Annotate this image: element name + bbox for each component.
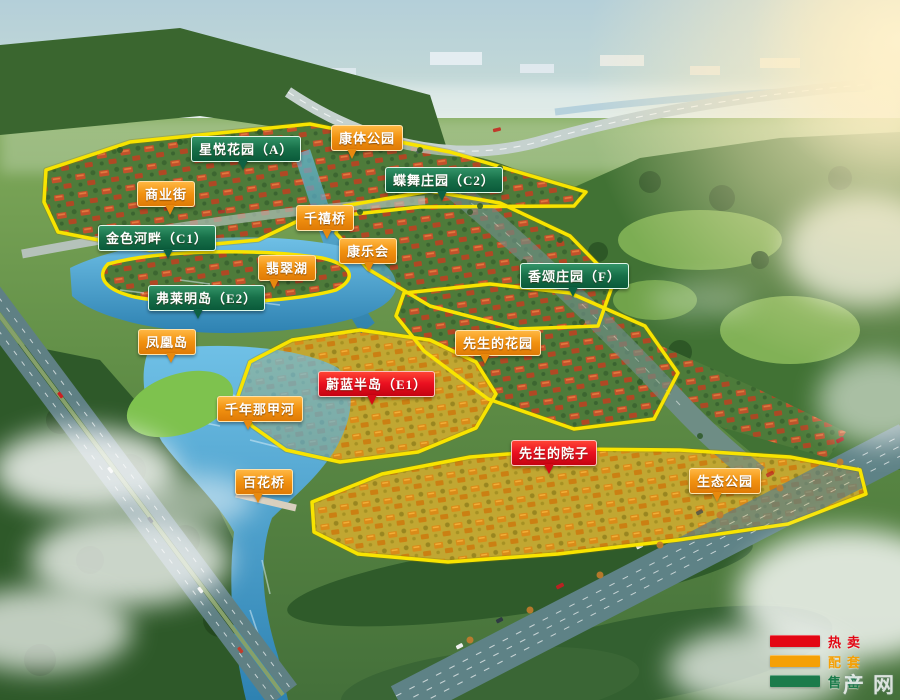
label-tail-pointer	[269, 279, 279, 289]
label-text: 先生的院子	[519, 446, 589, 461]
label-tail-pointer	[166, 353, 176, 363]
label-text: 凤凰岛	[146, 335, 188, 350]
label-text: 翡翠湖	[266, 261, 308, 276]
label-text: 蝶舞庄园（C2）	[393, 173, 495, 188]
label-tail-pointer	[238, 160, 248, 170]
label-tail-pointer	[322, 229, 332, 239]
legend-color-swatch-amenity	[770, 655, 820, 667]
label-text: 千禧桥	[304, 211, 346, 226]
map-label-mr-garden[interactable]: 先生的花园	[455, 330, 541, 356]
label-tail-pointer	[243, 420, 253, 430]
label-text: 先生的花园	[463, 336, 533, 351]
label-text: 金色河畔（C1）	[106, 231, 208, 246]
map-label-kangti-park[interactable]: 康体公园	[331, 125, 403, 151]
label-tail-pointer	[253, 493, 263, 503]
site-watermark: 产网	[843, 669, 900, 699]
map-label-jinse-riverside-c1[interactable]: 金色河畔（C1）	[98, 225, 216, 251]
map-label-xiangsong-manor-f[interactable]: 香颂庄园（F）	[520, 263, 629, 289]
legend-label-hot: 热卖	[828, 632, 866, 651]
legend-label-amenity: 配套	[828, 652, 866, 671]
map-label-shengtai-park[interactable]: 生态公园	[689, 468, 761, 494]
map-label-weilan-peninsula-e1[interactable]: 蔚蓝半岛（E1）	[318, 371, 435, 397]
label-tail-pointer	[568, 287, 578, 297]
label-text: 蔚蓝半岛（E1）	[326, 377, 427, 392]
map-label-mr-yard[interactable]: 先生的院子	[511, 440, 597, 466]
map-label-commercial-street[interactable]: 商业街	[137, 181, 195, 207]
label-text: 康体公园	[339, 131, 395, 146]
map-label-feicui-lake[interactable]: 翡翠湖	[258, 255, 316, 281]
map-label-qiannian-najia-river[interactable]: 千年那甲河	[217, 396, 303, 422]
label-tail-pointer	[480, 354, 490, 364]
label-tail-pointer	[163, 249, 173, 259]
label-text: 香颂庄园（F）	[528, 269, 621, 284]
map-label-fenghuang-island[interactable]: 凤凰岛	[138, 329, 196, 355]
legend-color-swatch-hot	[770, 635, 820, 647]
label-text: 弗莱明岛（E2）	[156, 291, 257, 306]
label-tail-pointer	[165, 205, 175, 215]
label-text: 商业街	[145, 187, 187, 202]
label-tail-pointer	[367, 395, 377, 405]
label-tail-pointer	[193, 309, 203, 319]
legend-color-swatch-soldout	[770, 675, 820, 687]
aerial-render-image	[0, 0, 900, 700]
map-label-diewu-manor-c2[interactable]: 蝶舞庄园（C2）	[385, 167, 503, 193]
map-label-fulaiming-island-e2[interactable]: 弗莱明岛（E2）	[148, 285, 265, 311]
label-tail-pointer	[544, 464, 554, 474]
map-label-xingyue-garden-a[interactable]: 星悦花园（A）	[191, 136, 301, 162]
legend-row-hot: 热卖	[770, 635, 866, 647]
map-label-qianxi-bridge[interactable]: 千禧桥	[296, 205, 354, 231]
label-text: 星悦花园（A）	[199, 142, 293, 157]
label-text: 康乐会	[347, 244, 389, 259]
label-text: 千年那甲河	[225, 402, 295, 417]
masterplan-aerial-view: 星悦花园（A） 康体公园 商业街 蝶舞庄园（C2） 金色河畔（C1） 千禧桥 康…	[0, 0, 900, 700]
label-tail-pointer	[712, 492, 722, 502]
label-tail-pointer	[347, 149, 357, 159]
label-tail-pointer	[437, 191, 447, 201]
label-text: 百花桥	[243, 475, 285, 490]
legend-row-amenity: 配套	[770, 655, 866, 667]
label-tail-pointer	[364, 262, 374, 272]
map-label-kangle-club[interactable]: 康乐会	[339, 238, 397, 264]
label-text: 生态公园	[697, 474, 753, 489]
map-label-baihua-bridge[interactable]: 百花桥	[235, 469, 293, 495]
